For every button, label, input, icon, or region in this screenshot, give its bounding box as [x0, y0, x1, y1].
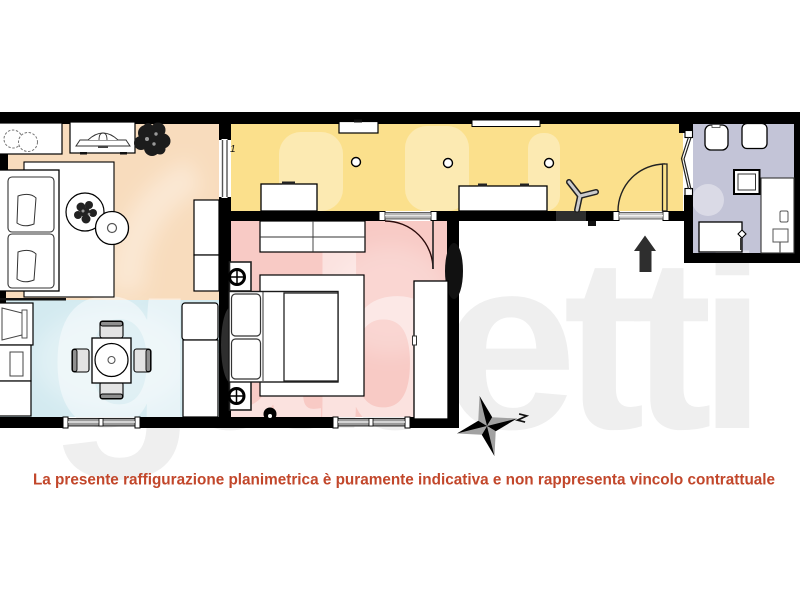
svg-text:La presente raffigurazione pla: La presente raffigurazione planimetrica …: [33, 472, 775, 489]
svg-text:1: 1: [230, 144, 236, 155]
